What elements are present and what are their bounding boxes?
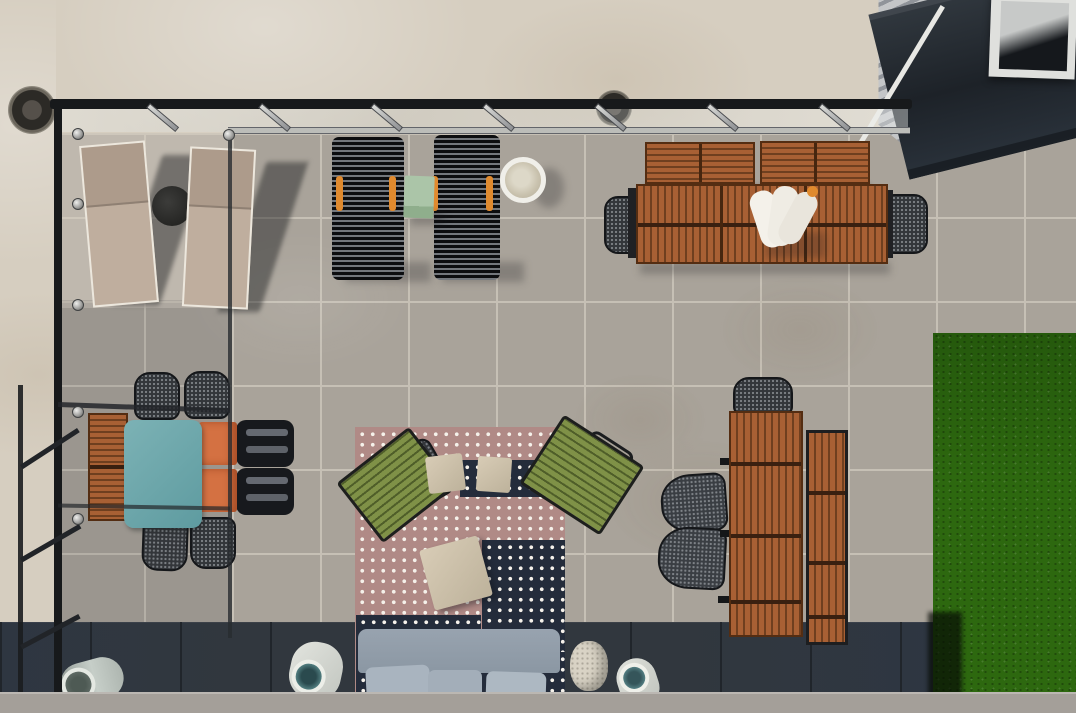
wall-brace [20, 428, 80, 469]
wall-transom [58, 503, 230, 510]
frame-knob [72, 513, 84, 525]
frame-knob [72, 406, 84, 418]
frame-knob [72, 198, 84, 210]
wall-brace [20, 614, 81, 649]
pergola-outer-post [18, 385, 23, 713]
frame-knob [223, 129, 235, 141]
frame-knob [72, 299, 84, 311]
rooftop-terrace-photo: Top-down aerial view of a rooftop terrac… [0, 0, 1076, 713]
wall-brace [20, 524, 81, 562]
frame-knob [72, 128, 84, 140]
pergola-inner-edge [228, 133, 232, 638]
parapet-edge-band [0, 692, 1076, 713]
pergola-wall-group [0, 0, 1076, 713]
